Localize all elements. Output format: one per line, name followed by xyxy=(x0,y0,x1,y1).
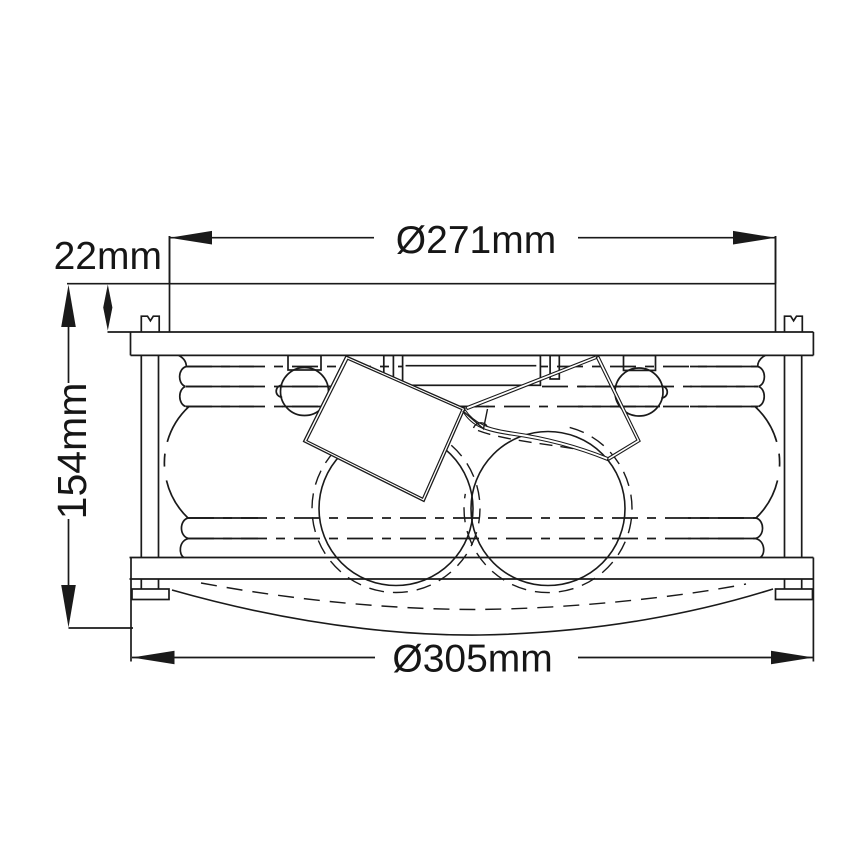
svg-text:154mm: 154mm xyxy=(49,383,95,520)
svg-text:Ø271mm: Ø271mm xyxy=(396,219,556,262)
svg-text:Ø305mm: Ø305mm xyxy=(392,638,552,681)
svg-text:22mm: 22mm xyxy=(54,235,162,278)
